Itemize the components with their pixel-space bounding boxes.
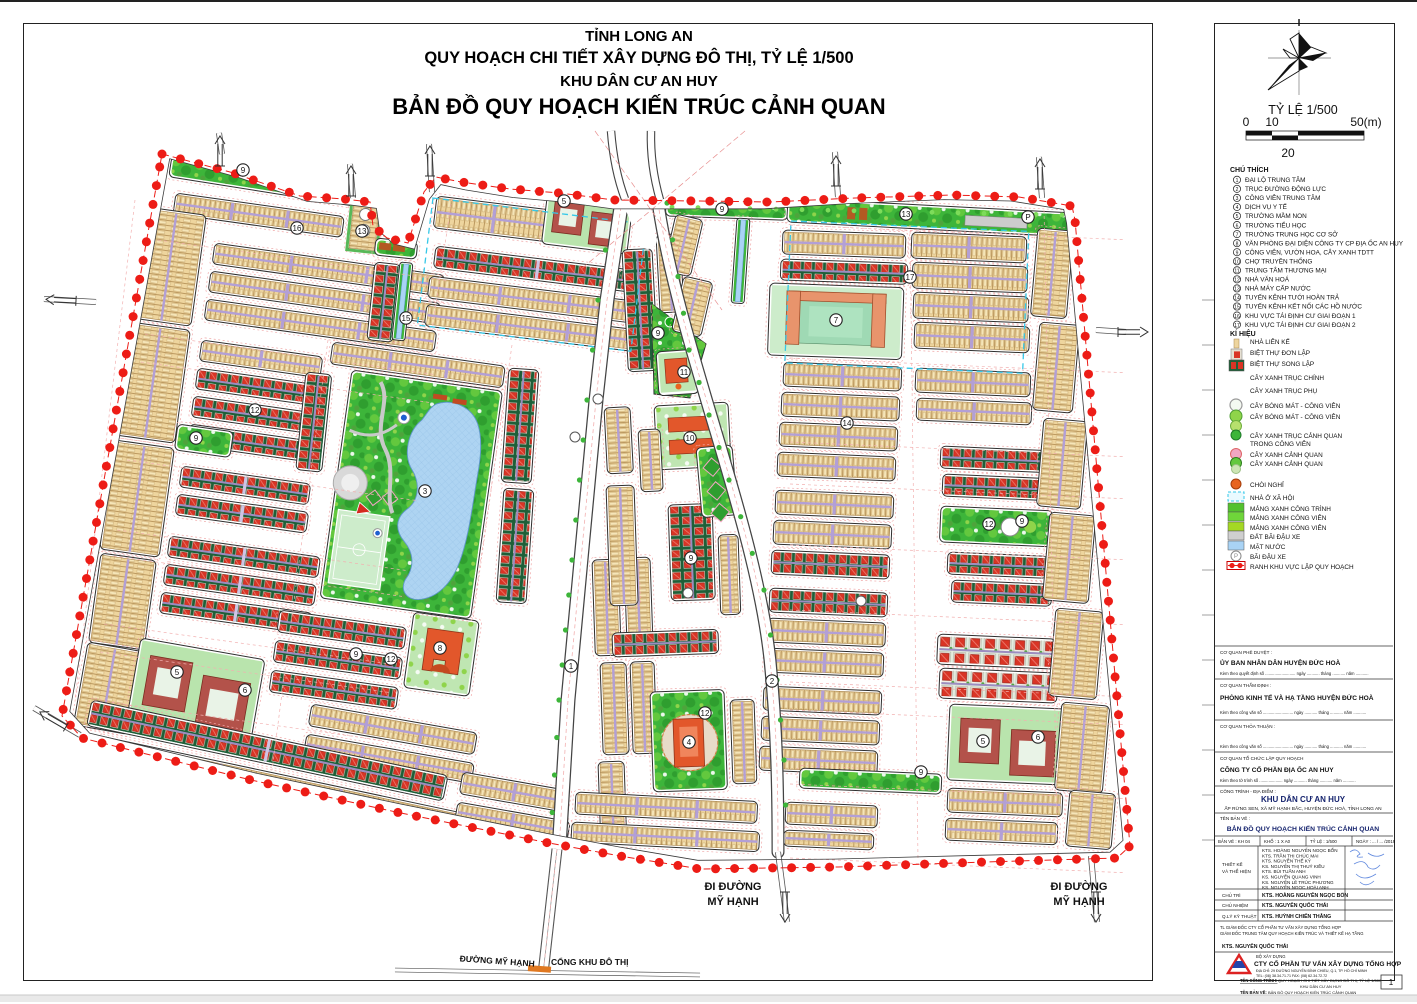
svg-text:CÂY BÓNG MÁT - CÔNG VIÊN: CÂY BÓNG MÁT - CÔNG VIÊN [1250,412,1341,421]
svg-text:TRƯỜNG TRUNG HỌC CƠ SỞ: TRƯỜNG TRUNG HỌC CƠ SỞ [1245,229,1338,238]
svg-text:8: 8 [438,644,443,653]
svg-text:P: P [1234,554,1238,560]
svg-text:6: 6 [243,686,248,695]
svg-text:QUY HOẠCH CHI TIẾT XÂY DỰNG ĐÔ: QUY HOẠCH CHI TIẾT XÂY DỰNG ĐÔ THỊ, TỶ L… [1278,978,1382,983]
svg-text:BẢN ĐỒ QUY HOẠCH KIẾN TRÚC CẢN: BẢN ĐỒ QUY HOẠCH KIẾN TRÚC CẢNH QUAN [1268,990,1356,995]
svg-text:CƠ QUAN TỔ CHỨC LẬP QUY HOẠCH: CƠ QUAN TỔ CHỨC LẬP QUY HOẠCH [1220,755,1303,761]
svg-text:KTS. NGUYỄN QUỐC THÁI: KTS. NGUYỄN QUỐC THÁI [1222,943,1289,950]
svg-text:KHU DÂN CƯ AN HUY: KHU DÂN CƯ AN HUY [1261,795,1346,804]
svg-text:CÂY XANH TRỤC PHỤ: CÂY XANH TRỤC PHỤ [1250,386,1318,395]
svg-text:PHÒNG KINH TẾ VÀ HẠ TẦNG HUYỆN: PHÒNG KINH TẾ VÀ HẠ TẦNG HUYỆN ĐỨC HOÀ [1220,692,1374,702]
svg-text:3: 3 [1236,196,1239,202]
svg-text:KS. NGUYỄN QUANG VINH: KS. NGUYỄN QUANG VINH [1262,874,1321,880]
svg-text:13: 13 [1234,287,1240,293]
svg-text:CÂY XANH TRỤC CHÍNH: CÂY XANH TRỤC CHÍNH [1250,373,1324,382]
svg-text:17: 17 [906,273,915,282]
svg-text:ĐẠI LỘ TRUNG TÂM: ĐẠI LỘ TRUNG TÂM [1245,175,1305,184]
svg-text:TÊN BẢN VẼ:: TÊN BẢN VẼ: [1240,990,1267,995]
svg-text:KTS. BÙI TUẤN ANH: KTS. BÙI TUẤN ANH [1262,868,1306,874]
svg-text:CHÒI NGHỈ: CHÒI NGHỈ [1250,480,1284,489]
svg-text:5: 5 [175,668,180,677]
svg-text:ỦY BAN NHÂN DÂN HUYỆN ĐỨC HOÀ: ỦY BAN NHÂN DÂN HUYỆN ĐỨC HOÀ [1220,658,1341,667]
svg-text:MẢNG XANH CÔNG VIÊN: MẢNG XANH CÔNG VIÊN [1250,523,1327,532]
svg-text:BÃI ĐẬU XE: BÃI ĐẬU XE [1250,552,1286,561]
svg-text:50(m): 50(m) [1350,115,1381,129]
svg-text:16: 16 [1234,314,1240,320]
svg-text:CHỦ TRÌ: CHỦ TRÌ [1222,892,1241,898]
svg-text:BẢN VẼ : KH 04: BẢN VẼ : KH 04 [1218,839,1251,844]
svg-text:VÀ THỂ HIỆN: VÀ THỂ HIỆN [1222,867,1251,874]
svg-text:15: 15 [402,314,411,323]
svg-text:11: 11 [680,368,689,377]
svg-text:KHU DÂN CƯ AN HUY: KHU DÂN CƯ AN HUY [1300,984,1342,989]
svg-text:CÂY XANH CẢNH QUAN: CÂY XANH CẢNH QUAN [1250,459,1323,468]
svg-text:14: 14 [1234,296,1240,302]
svg-text:CÔNG VIÊN TRUNG TÂM: CÔNG VIÊN TRUNG TÂM [1245,193,1320,202]
svg-text:17: 17 [1234,323,1240,329]
svg-text:P: P [1025,213,1030,222]
svg-text:BIỆT THỰ ĐƠN LẬP: BIỆT THỰ ĐƠN LẬP [1250,348,1310,357]
svg-text:TÊN CÔNG TRÌNH:: TÊN CÔNG TRÌNH: [1240,978,1277,983]
svg-text:6: 6 [1236,223,1239,229]
svg-text:CÔNG TY CỔ PHẦN ĐỊA ỐC AN HUY: CÔNG TY CỔ PHẦN ĐỊA ỐC AN HUY [1220,764,1334,774]
svg-text:0: 0 [1243,115,1250,129]
svg-text:CHỦ NHIỆM: CHỦ NHIỆM [1222,901,1248,908]
svg-text:NHÀ VĂN HOÁ: NHÀ VĂN HOÁ [1245,275,1290,284]
svg-text:KTS. TRẦN THỊ CHÚC MAI: KTS. TRẦN THỊ CHÚC MAI [1262,852,1319,858]
svg-text:BẢN ĐỒ QUY HOẠCH KIẾN TRÚC CẢN: BẢN ĐỒ QUY HOẠCH KIẾN TRÚC CẢNH QUAN [1227,823,1380,833]
svg-text:TỶ LỆ 1/500: TỶ LỆ 1/500 [1268,102,1338,117]
svg-text:4: 4 [687,738,692,747]
svg-text:TRƯỜNG MẦM NON: TRƯỜNG MẦM NON [1245,210,1307,220]
svg-text:9: 9 [241,166,246,175]
svg-text:CỔNG KHU ĐÔ THỊ: CỔNG KHU ĐÔ THỊ [551,956,628,967]
svg-text:10: 10 [1265,115,1279,129]
svg-text:14: 14 [843,419,852,428]
svg-text:13: 13 [902,210,911,219]
svg-text:CƠ QUAN THẨM ĐỊNH :: CƠ QUAN THẨM ĐỊNH : [1220,682,1271,688]
svg-text:ĐẤT BÃI ĐẬU XE: ĐẤT BÃI ĐẬU XE [1250,531,1300,541]
svg-text:CÂY XANH CẢNH QUAN: CÂY XANH CẢNH QUAN [1250,450,1323,459]
svg-text:KS. NGUYỄN THỊ THUÝ KIỀU: KS. NGUYỄN THỊ THUÝ KIỀU [1262,863,1325,869]
svg-text:RANH KHU VỰC LẬP QUY HOẠCH: RANH KHU VỰC LẬP QUY HOẠCH [1250,562,1354,571]
svg-text:2: 2 [770,677,775,686]
svg-text:6: 6 [1036,733,1041,742]
svg-text:12: 12 [387,655,396,664]
svg-text:KHU VỰC TÁI ĐỊNH CƯ GIAI ĐOẠN: KHU VỰC TÁI ĐỊNH CƯ GIAI ĐOẠN 1 [1245,311,1356,320]
svg-text:Kèm theo công văn số .........: Kèm theo công văn số ...................… [1220,710,1366,715]
svg-text:Kèm theo quyết định số .......: Kèm theo quyết định số .................… [1220,671,1369,676]
svg-text:TRỤC ĐƯỜNG ĐỘNG LỰC: TRỤC ĐƯỜNG ĐỘNG LỰC [1245,184,1326,193]
svg-text:TỶ LỆ : 1/500: TỶ LỆ : 1/500 [1310,839,1337,844]
svg-text:9: 9 [354,650,359,659]
svg-text:9: 9 [194,434,199,443]
svg-text:CHỢ TRUYỀN THỐNG: CHỢ TRUYỀN THỐNG [1245,255,1312,265]
svg-text:CƠ QUAN THỎA THUẬN :: CƠ QUAN THỎA THUẬN : [1220,723,1275,729]
svg-text:5: 5 [1236,214,1239,220]
svg-text:DỊCH VỤ Y TẾ: DỊCH VỤ Y TẾ [1245,201,1287,211]
svg-text:MẢNG XANH CÔNG TRÌNH: MẢNG XANH CÔNG TRÌNH [1250,504,1331,513]
svg-text:MẢNG XANH CÔNG VIÊN: MẢNG XANH CÔNG VIÊN [1250,513,1327,522]
svg-text:11: 11 [1234,269,1239,275]
svg-text:12: 12 [251,406,260,415]
svg-text:Q.LÝ KỸ THUẬT: Q.LÝ KỸ THUẬT [1222,913,1257,919]
svg-text:NGÀY : ... / ... /2019: NGÀY : ... / ... /2019 [1356,839,1396,844]
svg-text:9: 9 [656,329,661,338]
svg-text:ĐƯỜNG MỸ HẠNH: ĐƯỜNG MỸ HẠNH [459,952,535,968]
svg-text:ĐI ĐƯỜNG: ĐI ĐƯỜNG [1050,880,1107,893]
svg-text:BIỆT THỰ SONG LẬP: BIỆT THỰ SONG LẬP [1250,359,1314,368]
svg-text:TUYẾN KÊNH TƯỚI HOÀN TRẢ: TUYẾN KÊNH TƯỚI HOÀN TRẢ [1245,292,1340,302]
svg-text:NHÀ Ở XÃ HỘI: NHÀ Ở XÃ HỘI [1250,493,1294,502]
svg-text:TL GIÁM ĐỐC CTY CỔ PHẦN TƯ VẤN: TL GIÁM ĐỐC CTY CỔ PHẦN TƯ VẤN XÂY DỰNG … [1220,925,1341,930]
svg-text:TUYẾN KÊNH KẾT NỐI CÁC HỒ NƯỚC: TUYẾN KÊNH KẾT NỐI CÁC HỒ NƯỚC [1245,301,1362,311]
svg-text:MẶT NƯỚC: MẶT NƯỚC [1250,542,1286,551]
svg-text:1: 1 [1236,178,1239,184]
svg-text:9: 9 [919,768,924,777]
svg-text:1: 1 [1389,978,1394,987]
svg-text:CƠ QUAN PHÊ DUYỆT :: CƠ QUAN PHÊ DUYỆT : [1220,648,1272,655]
svg-text:5: 5 [981,737,986,746]
svg-text:3: 3 [423,487,428,496]
svg-text:4: 4 [1236,205,1239,211]
svg-text:KS. NGUYỄN NGỌC HOÀI ANH: KS. NGUYỄN NGỌC HOÀI ANH [1262,884,1329,890]
svg-text:KS. NGUYỄN LÊ TRÚC PHƯƠNG: KS. NGUYỄN LÊ TRÚC PHƯƠNG [1262,878,1334,885]
svg-text:7: 7 [1236,232,1239,238]
svg-text:CÂY XANH TRỤC CẢNH QUAN: CÂY XANH TRỤC CẢNH QUAN [1250,431,1342,440]
svg-text:TRƯỜNG TIỂU HỌC: TRƯỜNG TIỂU HỌC [1245,220,1307,229]
svg-text:9: 9 [689,554,694,563]
svg-text:TRUNG TÂM THƯƠNG MẠI: TRUNG TÂM THƯƠNG MẠI [1245,266,1327,275]
svg-text:9: 9 [720,205,725,214]
svg-text:Kèm theo công văn số .........: Kèm theo công văn số ...................… [1220,744,1366,749]
svg-text:VĂN PHÒNG ĐẠI DIỆN CÔNG TY CP: VĂN PHÒNG ĐẠI DIỆN CÔNG TY CP ĐỊA ỐC AN … [1245,237,1404,247]
svg-text:MỸ HẠNH: MỸ HẠNH [707,895,758,908]
svg-text:ĐI ĐƯỜNG: ĐI ĐƯỜNG [704,880,761,893]
svg-text:THIẾT KẾ: THIẾT KẾ [1222,861,1243,867]
svg-text:9: 9 [1236,250,1239,256]
svg-text:12: 12 [701,709,710,718]
svg-text:1: 1 [569,662,574,671]
svg-text:15: 15 [1234,305,1240,311]
svg-text:NHÀ MÁY CẤP NƯỚC: NHÀ MÁY CẤP NƯỚC [1245,283,1311,293]
svg-text:CHÚ THÍCH: CHÚ THÍCH [1230,165,1269,174]
svg-text:CÂY BÓNG MÁT - CÔNG VIÊN: CÂY BÓNG MÁT - CÔNG VIÊN [1250,401,1341,410]
svg-text:12: 12 [1234,278,1240,284]
svg-text:13: 13 [358,227,367,236]
svg-text:12: 12 [985,520,994,529]
svg-text:KTS. HUỲNH CHIẾN THẮNG: KTS. HUỲNH CHIẾN THẮNG [1262,912,1331,920]
svg-text:TÊN BẢN VẼ :: TÊN BẢN VẼ : [1220,814,1250,821]
svg-text:2: 2 [1236,187,1239,193]
svg-text:10: 10 [686,434,695,443]
svg-text:NHÀ LIÊN KẾ: NHÀ LIÊN KẾ [1250,336,1290,346]
svg-text:BỘ XÂY DỰNG: BỘ XÂY DỰNG [1256,954,1286,959]
svg-text:KHỔ : 1 X A0: KHỔ : 1 X A0 [1264,839,1291,844]
svg-text:5: 5 [562,197,567,206]
svg-text:20: 20 [1281,146,1295,160]
svg-text:8: 8 [1236,241,1239,247]
svg-text:MỸ HẠNH: MỸ HẠNH [1053,895,1104,908]
svg-text:KÍ HIỆU: KÍ HIỆU [1230,329,1256,338]
svg-text:GIÁM ĐỐC TRUNG TÂM QUY HOẠCH K: GIÁM ĐỐC TRUNG TÂM QUY HOẠCH KIẾN TRÚC V… [1220,931,1363,936]
svg-text:16: 16 [293,224,302,233]
svg-text:Kèm theo tờ trình số .........: Kèm theo tờ trình số ...................… [1220,778,1356,783]
svg-text:KHU VỰC TÁI ĐỊNH CƯ GIAI ĐOẠN: KHU VỰC TÁI ĐỊNH CƯ GIAI ĐOẠN 2 [1245,320,1356,329]
svg-text:KTS. NGUYỄN QUỐC THÁI: KTS. NGUYỄN QUỐC THÁI [1262,902,1329,909]
svg-text:9: 9 [1020,517,1025,526]
svg-text:KTS. NGUYỄN THẾ KỶ: KTS. NGUYỄN THẾ KỶ [1262,858,1311,864]
svg-text:I: I [1298,18,1301,29]
svg-text:CÔNG VIÊN, VƯỜN HOA, CÂY XANH: CÔNG VIÊN, VƯỜN HOA, CÂY XANH TDTT [1245,247,1374,256]
svg-text:KTS. HOÀNG NGUYỄN NGỌC BỔN: KTS. HOÀNG NGUYỄN NGỌC BỔN [1262,892,1348,899]
svg-text:10: 10 [1234,259,1240,265]
svg-text:TRONG CÔNG VIÊN: TRONG CÔNG VIÊN [1250,439,1311,448]
svg-text:CÔNG TRÌNH - ĐỊA ĐIỂM :: CÔNG TRÌNH - ĐỊA ĐIỂM : [1220,788,1276,794]
svg-text:7: 7 [834,316,839,325]
svg-text:KTS. HOÀNG NGUYỄN NGỌC BỔN: KTS. HOÀNG NGUYỄN NGỌC BỔN [1262,847,1338,853]
svg-text:ĐỊA CHỈ: 29 ĐƯỜNG NGUYỄN ĐÌNH: ĐỊA CHỈ: 29 ĐƯỜNG NGUYỄN ĐÌNH CHIỂU, Q.1… [1256,968,1367,973]
svg-text:ẤP RỪNG SEN, XÃ MỸ HẠNH BẮC, H: ẤP RỪNG SEN, XÃ MỸ HẠNH BẮC, HUYỆN ĐỨC H… [1224,804,1382,812]
svg-text:CTY CỔ PHẦN TƯ VẤN XÂY DỰNG TỔ: CTY CỔ PHẦN TƯ VẤN XÂY DỰNG TỔNG HỢP [1254,958,1402,968]
